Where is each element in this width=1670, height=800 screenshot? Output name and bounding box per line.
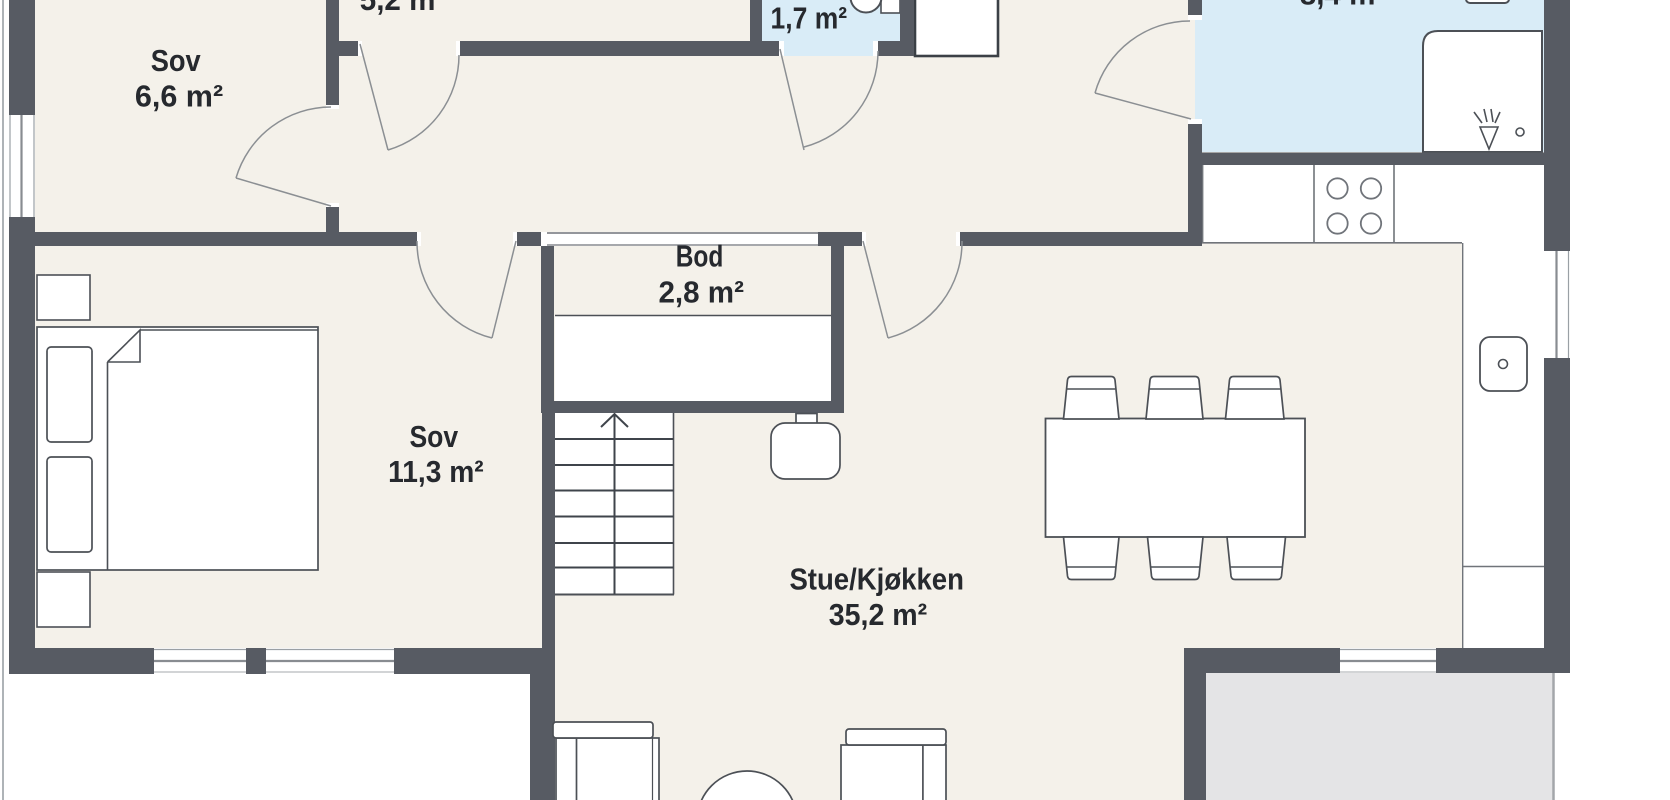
svg-text:8,4 m²: 8,4 m² <box>1300 0 1386 12</box>
svg-text:6,6 m²: 6,6 m² <box>135 78 223 113</box>
svg-text:35,2 m²: 35,2 m² <box>829 597 927 632</box>
svg-text:1,7 m²: 1,7 m² <box>771 0 848 35</box>
svg-text:2,8 m²: 2,8 m² <box>658 275 744 310</box>
svg-text:Bod: Bod <box>676 238 724 273</box>
svg-text:Sov: Sov <box>151 43 202 78</box>
svg-text:11,3 m²: 11,3 m² <box>388 454 484 489</box>
svg-text:5,2 m²: 5,2 m² <box>360 0 446 17</box>
svg-text:Sov: Sov <box>409 419 458 454</box>
svg-text:Stue/Kjøkken: Stue/Kjøkken <box>789 562 964 597</box>
